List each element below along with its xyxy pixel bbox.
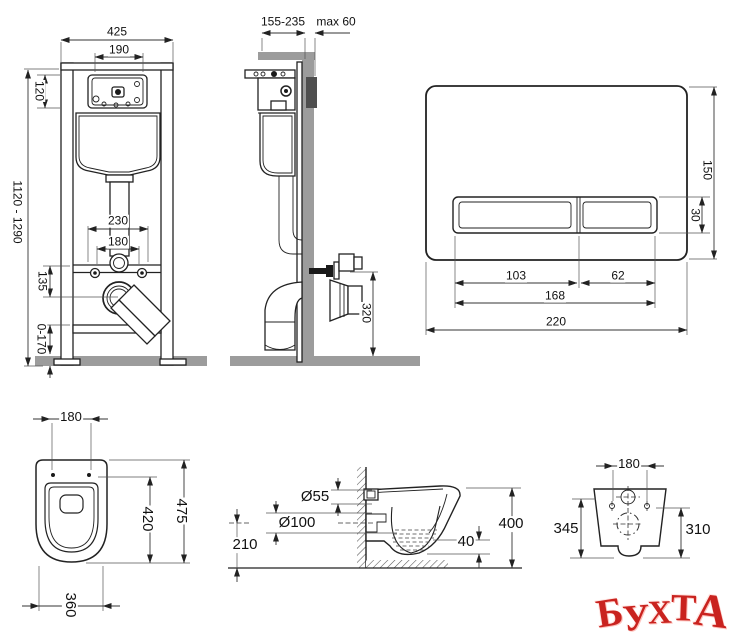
dim-fixing-span: 230	[107, 215, 129, 228]
wall-anchor	[306, 77, 317, 108]
dim-leg-adjustment: 0-170	[35, 323, 48, 356]
dim-plate-width: 220	[545, 316, 567, 329]
cistern-profile	[245, 70, 302, 350]
dim-top-fixing-span: 180	[59, 410, 83, 424]
outlet-fittings	[309, 254, 362, 321]
dim-bowl-drop: 40	[457, 534, 476, 550]
dim-buttons-width: 168	[544, 290, 566, 303]
dim-bowl-depth: 400	[497, 516, 524, 532]
wall-hatch	[357, 467, 366, 568]
watermark-logo: Б У Х Т А	[582, 575, 742, 640]
dim-large-button: 103	[505, 270, 527, 283]
dim-outlet-diameter: Ø100	[278, 515, 317, 531]
frame-side-view	[230, 33, 420, 366]
dim-window-width: 190	[108, 44, 130, 57]
floor-hatch	[366, 560, 448, 568]
dim-rear-height-right: 310	[684, 522, 711, 538]
dim-seat-length: 420	[139, 505, 155, 532]
rear-outline	[594, 489, 666, 556]
watermark-letter: Х	[647, 594, 671, 632]
floor-bar	[230, 356, 420, 366]
dim-outlet-center-height: 210	[231, 537, 258, 553]
flush-buttons	[453, 197, 657, 233]
dim-rear-height-left: 345	[552, 521, 579, 537]
technical-drawing-page: 425 190 120 1120 - 1290 230 180 135 0-17…	[0, 0, 742, 640]
dim-plate-height: 150	[701, 159, 714, 181]
dim-total-length: 475	[173, 497, 189, 524]
watermark-letter: А	[691, 582, 730, 640]
dim-wall-thickness: max 60	[315, 16, 356, 29]
dim-frame-depth: 155-235	[260, 16, 306, 29]
top-bracket	[258, 52, 315, 60]
dim-rear-fixing-span: 180	[617, 457, 641, 471]
toilet-rear-view	[570, 466, 690, 558]
watermark-letter: Б	[593, 587, 625, 637]
bowl-outline	[36, 460, 107, 562]
dim-installation-height: 1120 - 1290	[11, 179, 24, 244]
frame-front-view	[24, 40, 207, 378]
dim-inlet-diameter: Ø55	[300, 489, 330, 505]
toilet-top-view	[22, 419, 190, 611]
watermark-letter: У	[621, 595, 651, 640]
flush-plate-view	[426, 86, 717, 335]
dim-bowl-width: 360	[62, 591, 78, 618]
dim-small-button: 62	[610, 270, 625, 283]
water-inlet	[110, 254, 128, 272]
dim-drain-offset: 135	[36, 270, 49, 292]
flush-plate	[426, 86, 687, 260]
dim-frame-width: 425	[106, 26, 128, 39]
dim-window-height: 120	[33, 80, 46, 102]
toilet-side-view	[228, 467, 522, 582]
dim-button-height: 30	[689, 207, 702, 222]
bowl-profile	[366, 486, 460, 555]
cistern-access-panel	[88, 75, 147, 108]
dim-outlet-height: 320	[360, 302, 373, 324]
dim-pipe-span: 180	[107, 236, 129, 249]
